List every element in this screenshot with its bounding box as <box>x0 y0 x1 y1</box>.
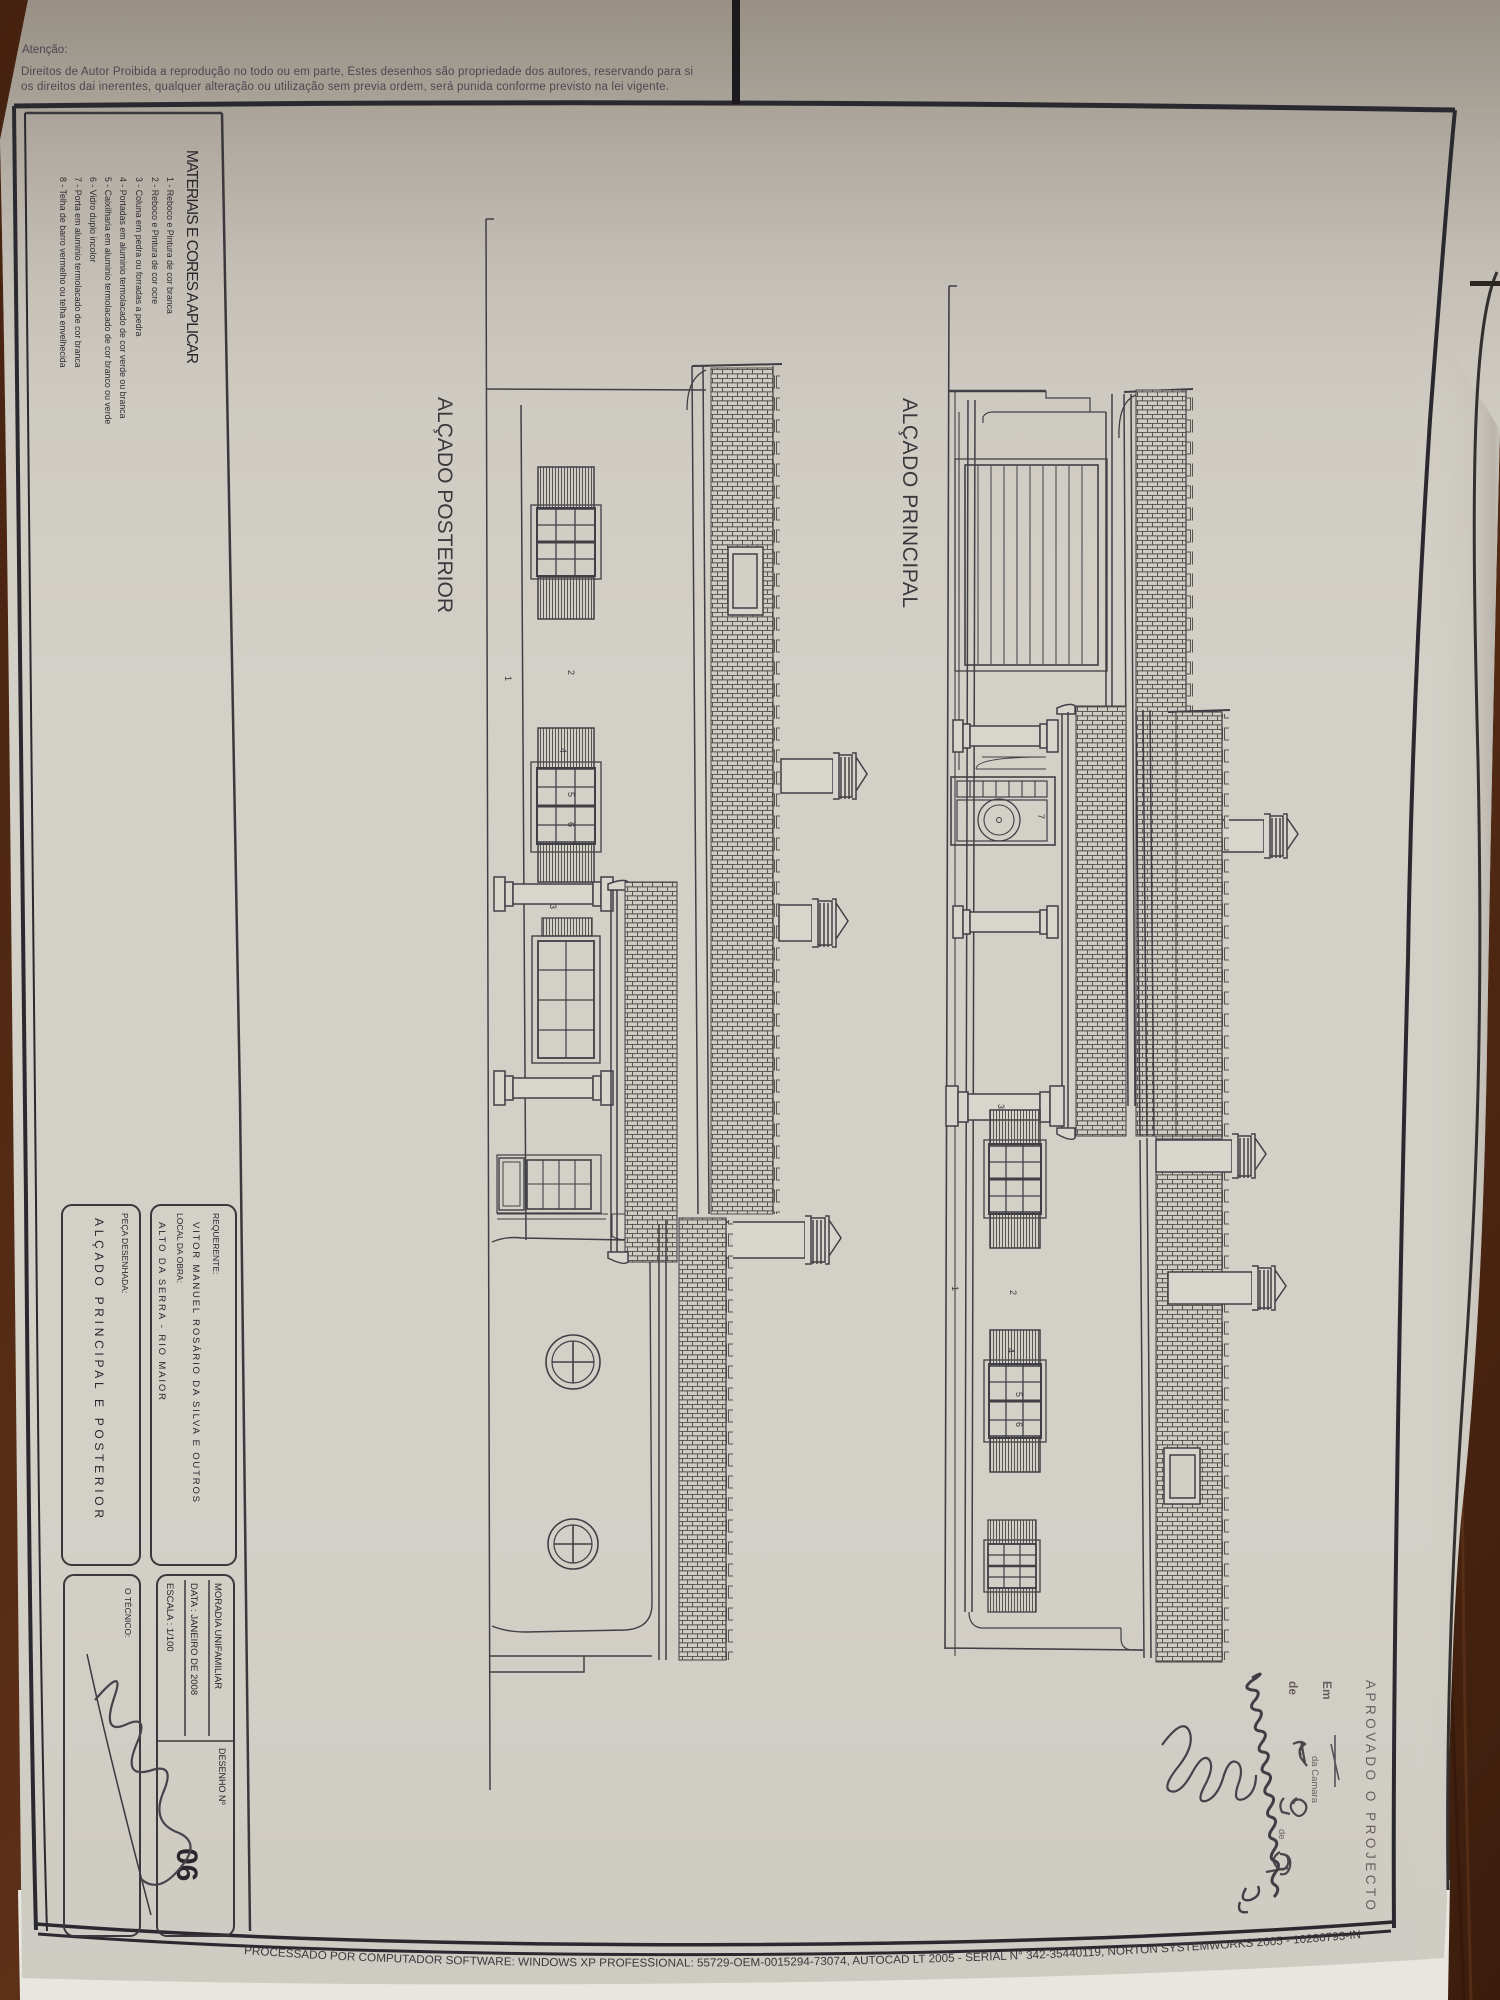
svg-text:6: 6 <box>566 822 576 827</box>
svg-text:Em: Em <box>1320 1681 1334 1700</box>
svg-text:7 - Porta em aluminio termolac: 7 - Porta em aluminio termolacado de cor… <box>73 177 83 368</box>
svg-text:PEÇA DESENHADA:: PEÇA DESENHADA: <box>120 1213 130 1293</box>
svg-text:2 - Reboco e Pintura de cor oc: 2 - Reboco e Pintura de cor ocre <box>150 177 160 304</box>
svg-text:APROVADO O PROJECTO: APROVADO O PROJECTO <box>1363 1680 1378 1910</box>
svg-text:1: 1 <box>503 676 513 681</box>
svg-text:O TÉCNICO:: O TÉCNICO: <box>123 1588 133 1637</box>
svg-text:de: de <box>1276 1829 1287 1840</box>
svg-text:06: 06 <box>170 1848 203 1881</box>
svg-text:1: 1 <box>950 1286 960 1291</box>
svg-text:3: 3 <box>548 904 558 909</box>
svg-text:REQUERENTE:: REQUERENTE: <box>211 1213 221 1274</box>
svg-text:3 - Coluna em pedra ou forrada: 3 - Coluna em pedra ou forradas a pedra <box>134 177 144 337</box>
svg-text:4: 4 <box>558 748 568 753</box>
svg-text:4: 4 <box>1006 1348 1016 1353</box>
svg-text:ESCALA : 1/100: ESCALA : 1/100 <box>164 1583 175 1652</box>
svg-text:3: 3 <box>996 1104 1006 1109</box>
svg-text:8 - Telha de barro vermelho ou: 8 - Telha de barro vermelho ou telha env… <box>58 177 68 368</box>
svg-text:7: 7 <box>1036 814 1046 819</box>
svg-text:5 - Caixilharia em aluminio te: 5 - Caixilharia em aluminio termolacado … <box>103 177 113 425</box>
svg-text:6 - Vidro duplo incolor: 6 - Vidro duplo incolor <box>88 177 98 262</box>
svg-text:1 - Reboco e Pintura de cor br: 1 - Reboco e Pintura de cor branca <box>165 177 175 314</box>
svg-text:MATERIAIS E CORES A APLICAR: MATERIAIS E CORES A APLICAR <box>183 150 200 364</box>
svg-text:MORADIA UNIFAMILIAR: MORADIA UNIFAMILIAR <box>212 1583 223 1689</box>
svg-text:2: 2 <box>566 670 576 675</box>
svg-text:ALÇADO POSTERIOR: ALÇADO POSTERIOR <box>433 397 456 613</box>
svg-text:LOCAL DA OBRA:: LOCAL DA OBRA: <box>175 1213 185 1283</box>
svg-text:os direitos dai inerentes, qua: os direitos dai inerentes, qualquer alte… <box>21 81 669 93</box>
svg-text:5: 5 <box>1014 1392 1024 1397</box>
svg-text:Atenção:: Atenção: <box>22 44 67 56</box>
svg-text:da Camara: da Camara <box>1309 1756 1320 1804</box>
svg-text:2: 2 <box>1008 1290 1018 1295</box>
svg-text:DESENHO Nº: DESENHO Nº <box>217 1748 227 1806</box>
svg-text:5: 5 <box>566 792 576 797</box>
svg-text:6: 6 <box>1014 1422 1024 1427</box>
svg-text:4 - Portadas em aluminio termo: 4 - Portadas em aluminio termolacado de … <box>118 177 128 419</box>
svg-text:Direitos de Autor Proibida a r: Direitos de Autor Proibida a reprodução … <box>21 66 693 78</box>
svg-text:de: de <box>1286 1681 1300 1695</box>
svg-text:ALÇADO PRINCIPAL: ALÇADO PRINCIPAL <box>898 398 921 608</box>
svg-text:DATA : JANEIRO DE 2008: DATA : JANEIRO DE 2008 <box>188 1583 199 1695</box>
